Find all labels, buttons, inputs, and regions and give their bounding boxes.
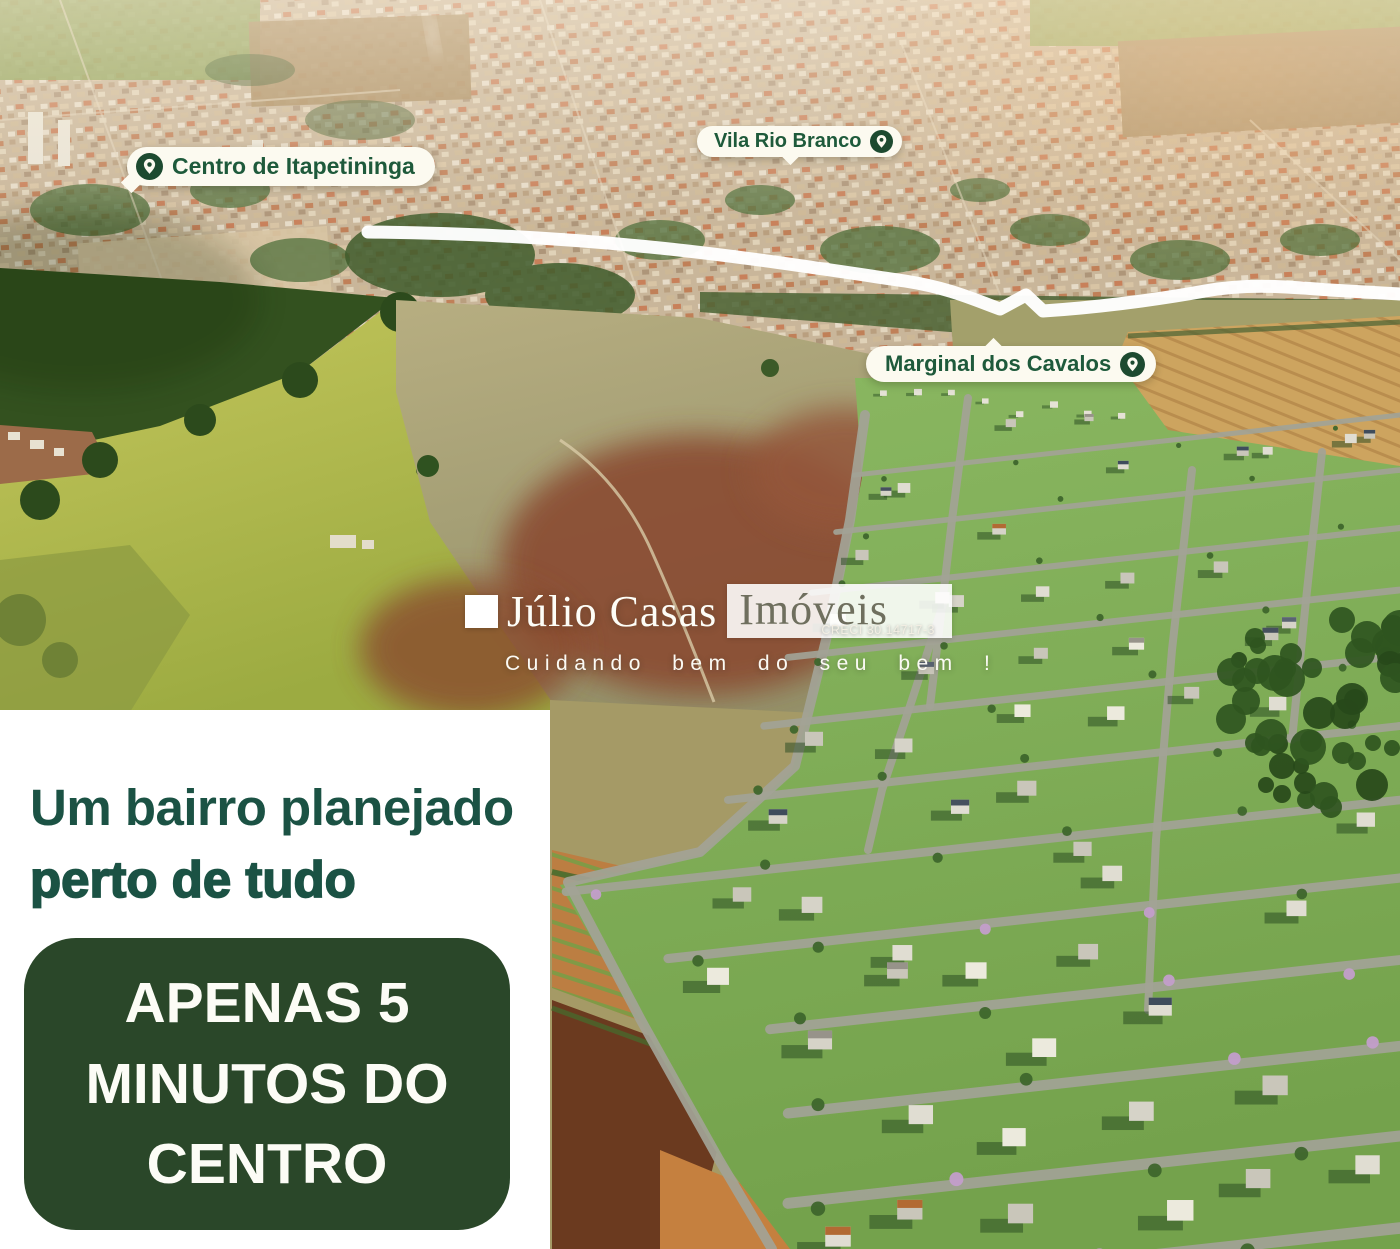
- location-pin-icon: [870, 130, 893, 153]
- badge-line1: APENAS 5: [124, 963, 409, 1044]
- map-label-text: Marginal dos Cavalos: [885, 351, 1111, 377]
- brand-name-first: Júlio Casas: [507, 586, 717, 637]
- brand-watermark: Júlio Casas Imóveis CRECI 30.14717-3 Cui…: [465, 584, 996, 676]
- map-label-centro: Centro de Itapetininga: [127, 147, 435, 186]
- headline: Um bairro planejado perto de tudo: [30, 772, 514, 917]
- creci-number: CRECI 30.14717-3: [720, 623, 935, 637]
- map-label-text: Vila Rio Branco: [714, 130, 861, 153]
- logo-square-icon: [465, 595, 498, 628]
- badge-5-minutes: APENAS 5 MINUTOS DO CENTRO: [24, 938, 510, 1230]
- brand-tagline: Cuidando bem do seu bem !: [505, 652, 996, 676]
- promo-image: Centro de Itapetininga Vila Rio Branco M…: [0, 0, 1400, 1249]
- map-label-marginal: Marginal dos Cavalos: [866, 346, 1156, 382]
- headline-line1: Um bairro planejado: [30, 772, 514, 844]
- badge-line2: MINUTOS DO: [85, 1044, 448, 1125]
- map-label-text: Centro de Itapetininga: [172, 153, 415, 180]
- info-panel: Um bairro planejado perto de tudo APENAS…: [0, 710, 550, 1249]
- badge-line3: CENTRO: [147, 1124, 388, 1205]
- location-pin-icon: [136, 153, 163, 180]
- headline-line2: perto de tudo: [30, 844, 514, 916]
- location-pin-icon: [1120, 352, 1145, 377]
- map-label-vila: Vila Rio Branco: [697, 126, 902, 157]
